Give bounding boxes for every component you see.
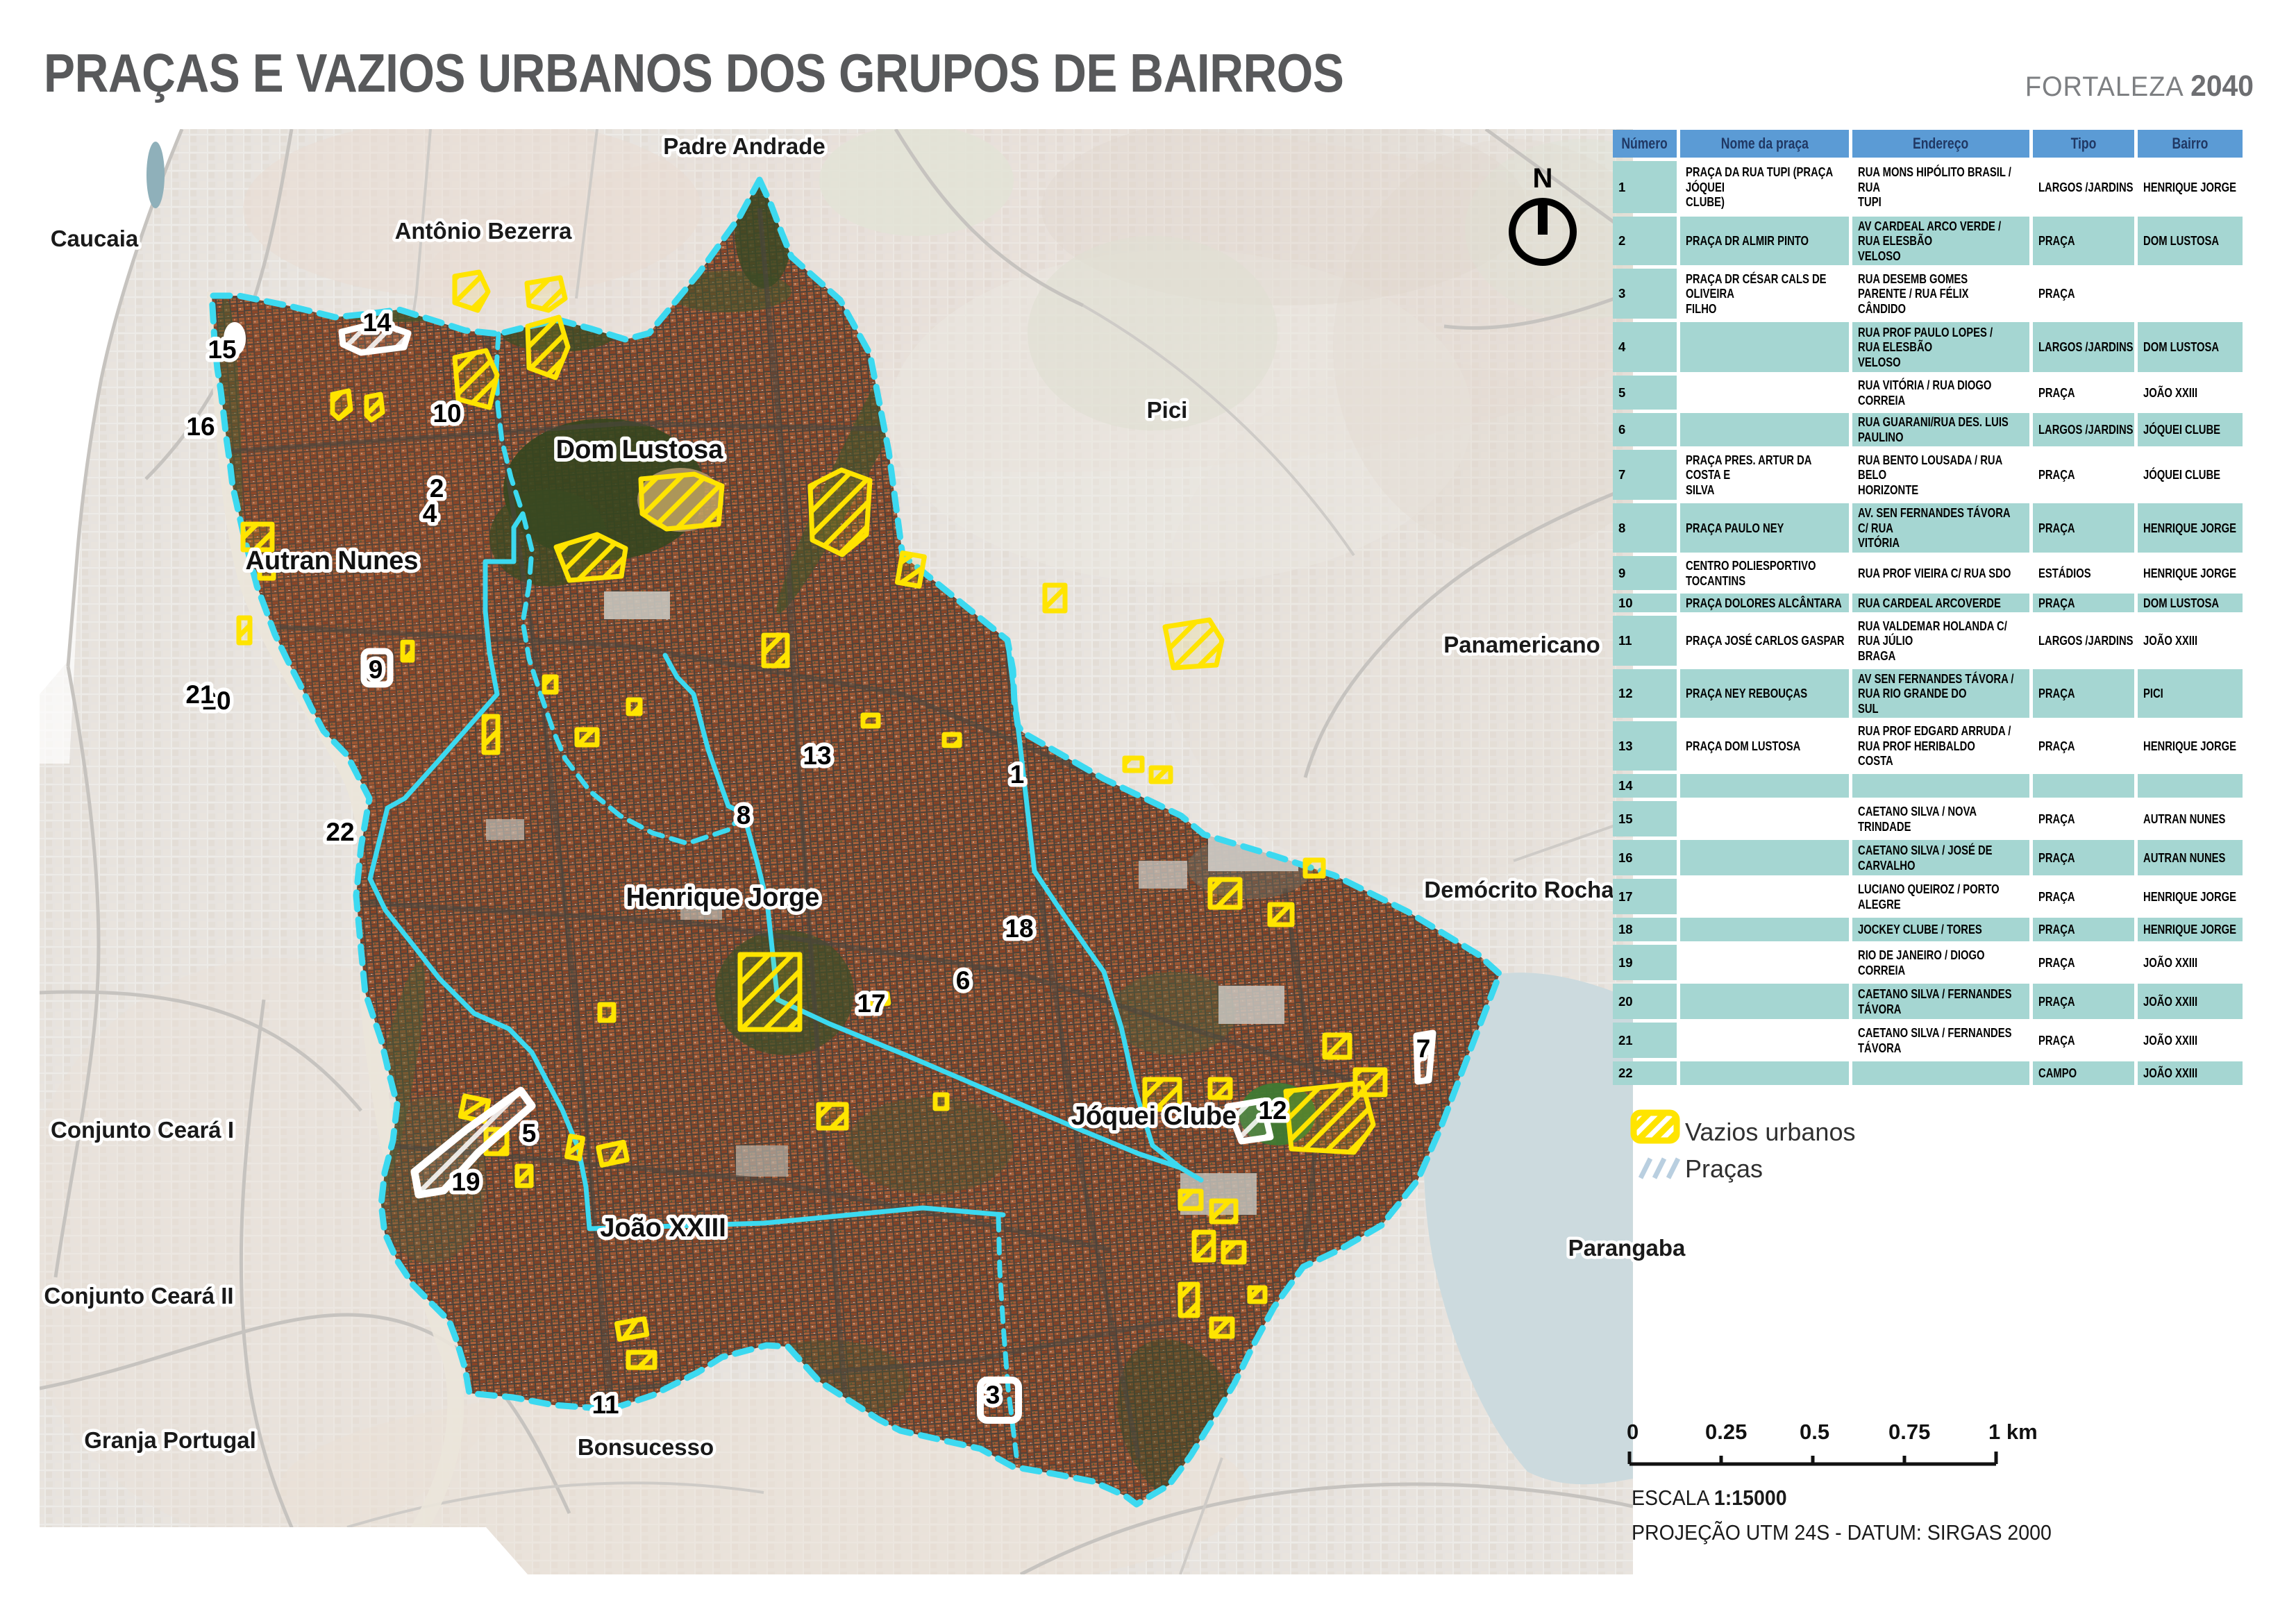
svg-text:Jóquei Clube: Jóquei Clube — [1071, 1102, 1237, 1131]
svg-text:16: 16 — [186, 412, 215, 441]
svg-text:2: 2 — [430, 474, 444, 503]
svg-text:5: 5 — [522, 1119, 537, 1147]
svg-text:Parangaba: Parangaba — [1568, 1235, 1686, 1261]
svg-text:0.5: 0.5 — [1800, 1420, 1829, 1444]
svg-text:8: 8 — [737, 801, 751, 830]
svg-text:18: 18 — [1005, 914, 1033, 943]
svg-text:3: 3 — [986, 1381, 1000, 1409]
svg-text:Dom Lustosa: Dom Lustosa — [556, 435, 724, 464]
svg-text:Panamericano: Panamericano — [1443, 632, 1600, 657]
svg-text:Padre Andrade: Padre Andrade — [663, 133, 826, 159]
svg-text:6: 6 — [956, 966, 971, 995]
svg-text:10: 10 — [433, 399, 461, 428]
svg-text:Antônio Bezerra: Antônio Bezerra — [395, 218, 573, 244]
svg-text:Conjunto Ceará I: Conjunto Ceará I — [51, 1117, 234, 1143]
svg-text:17: 17 — [857, 989, 885, 1018]
svg-text:0.75: 0.75 — [1888, 1420, 1930, 1444]
svg-text:0.25: 0.25 — [1705, 1420, 1747, 1444]
svg-text:Bonsucesso: Bonsucesso — [578, 1434, 714, 1460]
svg-text:Caucaia: Caucaia — [51, 226, 139, 251]
svg-text:14: 14 — [362, 308, 392, 337]
svg-text:4: 4 — [423, 499, 437, 528]
svg-text:21: 21 — [185, 680, 214, 709]
svg-text:1 km: 1 km — [1988, 1420, 2038, 1444]
svg-text:19: 19 — [451, 1168, 480, 1196]
svg-text:0: 0 — [1627, 1420, 1639, 1444]
svg-text:Henrique Jorge: Henrique Jorge — [626, 883, 820, 912]
svg-text:Granja Portugal: Granja Portugal — [84, 1427, 256, 1453]
svg-text:João XXIII: João XXIII — [600, 1213, 726, 1243]
svg-text:Demócrito Rocha: Demócrito Rocha — [1424, 877, 1614, 902]
svg-text:N: N — [1533, 163, 1553, 194]
svg-text:12: 12 — [1258, 1096, 1287, 1125]
svg-text:15: 15 — [208, 335, 236, 364]
svg-text:7: 7 — [1416, 1034, 1431, 1063]
svg-text:Autran Nunes: Autran Nunes — [245, 546, 418, 575]
svg-text:11: 11 — [592, 1390, 619, 1419]
svg-text:13: 13 — [803, 741, 831, 770]
svg-text:9: 9 — [369, 655, 383, 684]
svg-text:Pici: Pici — [1147, 397, 1188, 423]
svg-text:1: 1 — [1010, 760, 1025, 789]
svg-text:Conjunto Ceará II: Conjunto Ceará II — [44, 1283, 233, 1309]
svg-text:22: 22 — [326, 818, 354, 846]
